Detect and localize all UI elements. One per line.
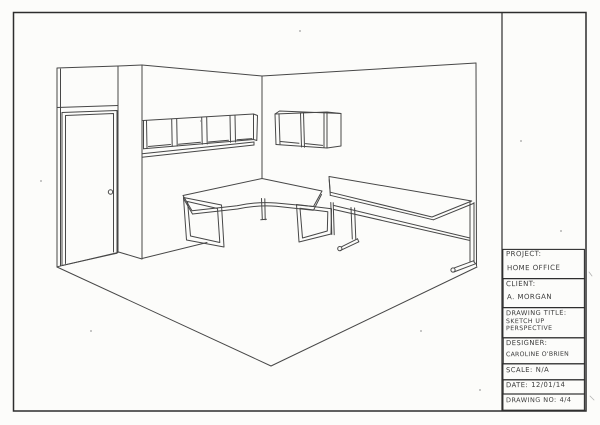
- drawing-no-row: DRAWING NO:4/4: [505, 397, 571, 404]
- project-label: PROJECT:: [506, 250, 541, 257]
- client-value: A. MORGAN: [507, 294, 552, 301]
- l-desk: [183, 179, 332, 248]
- door-knob: [108, 190, 112, 194]
- drawing-no-label: DRAWING NO:: [505, 396, 556, 404]
- scale-row: SCALE:N/A: [506, 367, 549, 374]
- designer-label: DESIGNER:: [506, 339, 547, 346]
- drawing-title-line2: PERSPECTIVE: [506, 326, 553, 333]
- designer-value: CAROLINE O'BRIEN: [506, 352, 569, 359]
- l-desk-right-leg: [297, 205, 332, 243]
- scale-value: N/A: [536, 366, 549, 374]
- pillar: [118, 65, 142, 259]
- date-label: DATE:: [506, 381, 528, 389]
- wall-box-right: [275, 111, 341, 148]
- floor: [57, 267, 477, 366]
- client-label: CLIENT:: [506, 280, 536, 287]
- sheet-border: [14, 13, 587, 412]
- l-desk-left-leg: [184, 198, 225, 248]
- scale-label: SCALE:: [506, 366, 533, 374]
- date-row: DATE:12/01/14: [506, 382, 565, 389]
- sheet-graphics: [0, 0, 600, 425]
- drawing-sheet: PROJECT: HOME OFFICE CLIENT: A. MORGAN D…: [0, 0, 600, 425]
- door: [62, 111, 117, 266]
- date-value: 12/01/14: [531, 381, 565, 389]
- project-value: HOME OFFICE: [507, 264, 560, 271]
- l-desk-corner-leg: [261, 199, 267, 220]
- long-desk: [329, 177, 476, 273]
- shelf-unit-left: [142, 114, 258, 157]
- drawing-title-label: DRAWING TITLE:: [506, 309, 567, 316]
- drawing-no-value: 4/4: [559, 396, 571, 404]
- walls: [57, 63, 477, 267]
